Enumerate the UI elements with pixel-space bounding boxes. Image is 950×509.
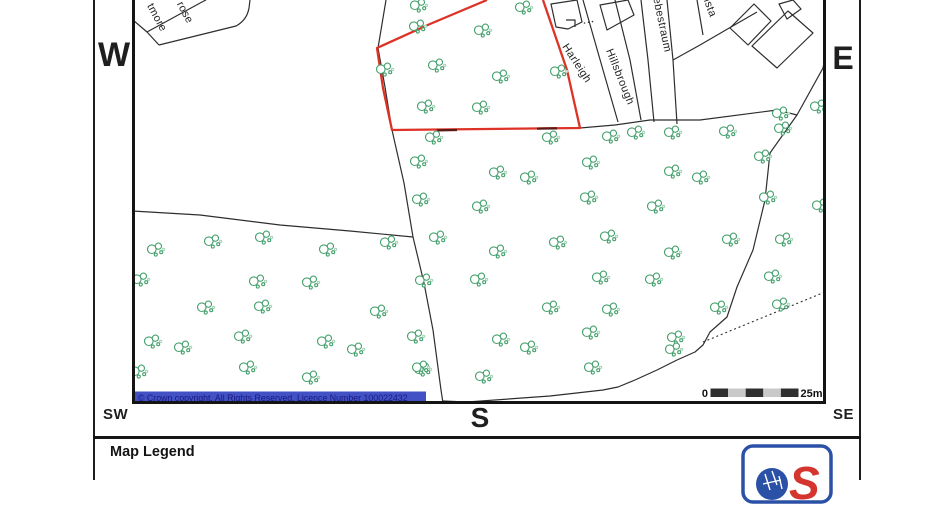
tree-icon bbox=[198, 301, 215, 314]
compass-east-label: E bbox=[826, 40, 860, 77]
tree-icon bbox=[145, 335, 162, 348]
tree-icon bbox=[471, 273, 488, 286]
tree-icon bbox=[775, 122, 792, 135]
site-location-map: tmore rose Harleigh Hillsbrough Liebestr… bbox=[0, 0, 950, 437]
tree-icon bbox=[473, 200, 490, 213]
tree-icon bbox=[773, 107, 790, 120]
tree-icon bbox=[646, 273, 663, 286]
tree-icon bbox=[711, 301, 728, 314]
section-divider bbox=[93, 436, 861, 439]
scale-end-label: 25m bbox=[801, 388, 823, 400]
tree-icon bbox=[666, 343, 683, 356]
tree-icon bbox=[205, 235, 222, 248]
buildings bbox=[551, 0, 813, 68]
os-logo-letter-s: S bbox=[789, 457, 820, 504]
tree-icon bbox=[773, 298, 790, 311]
scale-start-label: 0 bbox=[702, 388, 708, 400]
tree-icon bbox=[760, 191, 777, 204]
street-label-tmore: tmore bbox=[144, 1, 169, 33]
compass-west-label: W bbox=[95, 36, 133, 75]
scale-bar: 0 25m bbox=[702, 388, 823, 400]
tree-icon bbox=[493, 333, 510, 346]
street-label-hillsbrough: Hillsbrough bbox=[603, 47, 636, 107]
tree-icon bbox=[371, 305, 388, 318]
compass-southwest-label: SW bbox=[103, 406, 128, 423]
tree-icon bbox=[723, 233, 740, 246]
tree-icon bbox=[543, 301, 560, 314]
tree-icon bbox=[516, 1, 533, 14]
tree-icon bbox=[426, 131, 443, 144]
tree-icon bbox=[256, 231, 273, 244]
tree-icon bbox=[665, 165, 682, 178]
tree-symbols-layer bbox=[131, 0, 830, 384]
compass-south-label: S bbox=[460, 402, 500, 434]
tree-icon bbox=[175, 341, 192, 354]
tree-icon bbox=[581, 191, 598, 204]
tree-icon bbox=[303, 371, 320, 384]
tree-icon bbox=[603, 303, 620, 316]
tree-icon bbox=[418, 100, 435, 113]
tree-icon bbox=[550, 236, 567, 249]
tree-icon bbox=[603, 130, 620, 143]
tree-icon bbox=[521, 341, 538, 354]
tree-icon bbox=[648, 200, 665, 213]
street-label-ista: ista bbox=[701, 0, 719, 19]
tree-icon bbox=[475, 24, 492, 37]
tree-icon bbox=[235, 330, 252, 343]
tree-icon bbox=[429, 59, 446, 72]
tree-icon bbox=[668, 331, 685, 344]
tree-icon bbox=[377, 63, 394, 76]
tree-icon bbox=[320, 243, 337, 256]
dotted-path bbox=[703, 292, 825, 342]
tree-icon bbox=[416, 274, 433, 287]
map-legend-title: Map Legend bbox=[110, 444, 195, 460]
tree-icon bbox=[430, 231, 447, 244]
tree-icon bbox=[408, 330, 425, 343]
tree-icon bbox=[813, 199, 830, 212]
tree-icon bbox=[583, 156, 600, 169]
tree-icon bbox=[303, 276, 320, 289]
tree-icon bbox=[318, 335, 335, 348]
tree-icon bbox=[411, 0, 428, 12]
tree-icon bbox=[765, 270, 782, 283]
field-boundaries bbox=[133, 0, 825, 403]
tree-icon bbox=[583, 326, 600, 339]
tree-icon bbox=[473, 101, 490, 114]
tree-icon bbox=[601, 230, 618, 243]
compass-southeast-label: SE bbox=[833, 406, 854, 423]
tree-icon bbox=[476, 370, 493, 383]
tree-icon bbox=[493, 70, 510, 83]
tree-icon bbox=[776, 233, 793, 246]
tree-icon bbox=[240, 361, 257, 374]
tree-icon bbox=[250, 275, 267, 288]
street-label-rose: rose bbox=[174, 0, 195, 26]
tree-icon bbox=[348, 343, 365, 356]
os-logo-letter-o-icon bbox=[756, 468, 788, 500]
tree-icon bbox=[628, 126, 645, 139]
tree-icon bbox=[665, 246, 682, 259]
tree-icon bbox=[693, 171, 710, 184]
map-frame bbox=[134, 0, 825, 403]
tree-icon bbox=[490, 166, 507, 179]
tree-icon bbox=[543, 131, 560, 144]
tree-icon bbox=[585, 361, 602, 374]
tree-icon bbox=[133, 273, 150, 286]
tree-icon bbox=[521, 171, 538, 184]
tree-icon bbox=[490, 245, 507, 258]
tree-icon bbox=[665, 126, 682, 139]
tree-icon bbox=[381, 236, 398, 249]
tree-icon bbox=[411, 155, 428, 168]
tree-icon bbox=[720, 125, 737, 138]
ordnance-survey-logo: S bbox=[741, 444, 833, 504]
tree-icon bbox=[413, 193, 430, 206]
tree-icon bbox=[148, 243, 165, 256]
tree-icon bbox=[255, 300, 272, 313]
tree-icon bbox=[593, 271, 610, 284]
